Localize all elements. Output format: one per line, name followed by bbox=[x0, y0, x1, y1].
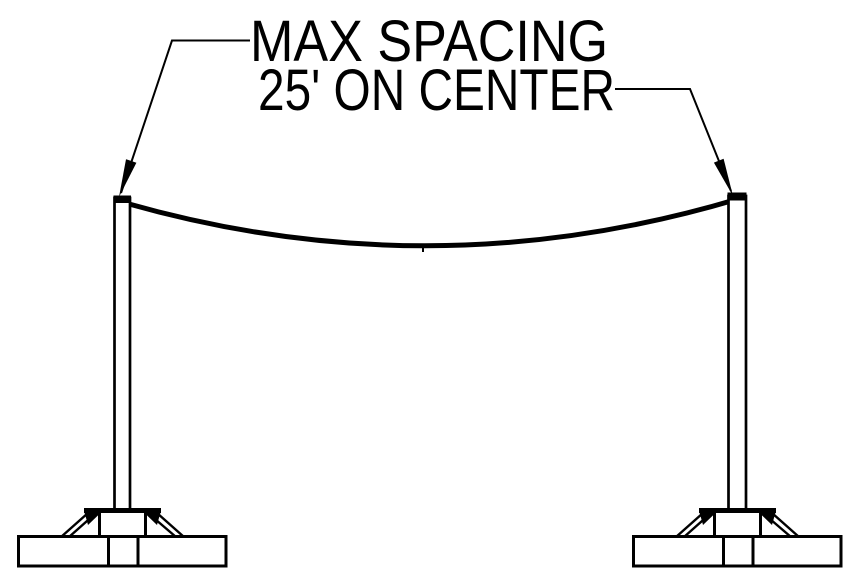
callout: MAX SPACING 25' ON CENTER bbox=[250, 9, 615, 123]
left-base-hub bbox=[100, 510, 146, 537]
left-leader bbox=[119, 41, 250, 198]
right-leader-line bbox=[615, 89, 731, 191]
right-base-hub bbox=[715, 510, 761, 537]
left-leader-arrowhead-icon bbox=[119, 159, 136, 197]
left-base bbox=[19, 510, 227, 567]
left-post-cap bbox=[114, 196, 132, 204]
left-base-block bbox=[19, 537, 227, 567]
left-post-shaft bbox=[115, 198, 131, 510]
left-post bbox=[114, 196, 132, 511]
right-base bbox=[634, 510, 842, 567]
right-leader bbox=[615, 89, 733, 196]
left-leader-line bbox=[121, 41, 250, 194]
right-post bbox=[728, 193, 747, 511]
right-post-cap bbox=[728, 193, 747, 201]
cable-line bbox=[122, 199, 738, 246]
diagram-canvas: MAX SPACING 25' ON CENTER bbox=[0, 0, 860, 586]
right-leader-arrowhead-icon bbox=[714, 159, 733, 196]
stanchion-spacing-diagram: MAX SPACING 25' ON CENTER bbox=[0, 0, 860, 586]
right-base-block bbox=[634, 537, 842, 567]
right-post-shaft bbox=[729, 196, 747, 510]
callout-line-2: 25' ON CENTER bbox=[258, 58, 615, 123]
